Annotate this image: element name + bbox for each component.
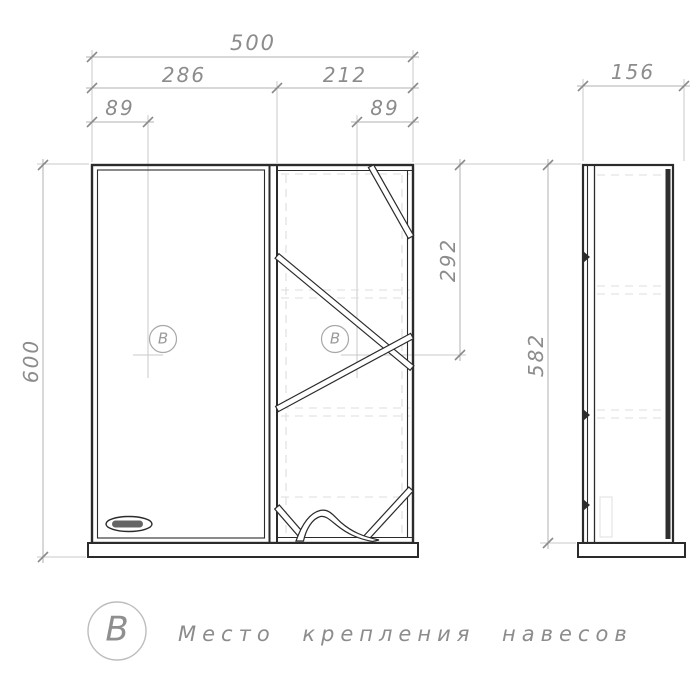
hanger-symbol-letter-left: В [158,330,168,348]
front-mirror-door [98,170,265,538]
side-hidden-lines [597,175,664,537]
dim-front-left-section: 286 [162,63,206,87]
side-plinth [578,543,685,557]
front-plinth [88,543,418,557]
dim-front-total-height: 600 [19,339,43,383]
dim-hanger-drop: 292 [436,238,460,282]
dim-hanger-offset-right: 89 [370,96,399,120]
dim-front-total-width: 500 [230,31,276,55]
front-view [88,165,418,557]
front-cabinet-outline [92,165,413,543]
side-view [578,165,685,557]
dim-front-right-section: 212 [323,63,367,87]
side-cabinet-outline [583,165,673,543]
legend-symbol-letter: В [105,609,128,649]
dimension-lines [43,57,690,563]
hanger-symbols [150,326,349,353]
brand-logo-badge [106,517,152,532]
dim-hanger-offset-left: 89 [105,96,134,120]
dimension-ticks [38,52,689,562]
dim-side-depth: 156 [611,60,655,84]
front-wave-element [296,510,379,541]
technical-drawing-cabinet: 500 286 212 89 89 600 292 156 582 В В В … [0,0,700,700]
legend-label: Место крепления навесов [178,622,633,646]
side-mirror-band [666,169,671,539]
dim-side-body-height: 582 [524,333,548,377]
front-diagonal-strips [275,165,414,540]
hanger-symbol-letter-right: В [330,330,340,348]
